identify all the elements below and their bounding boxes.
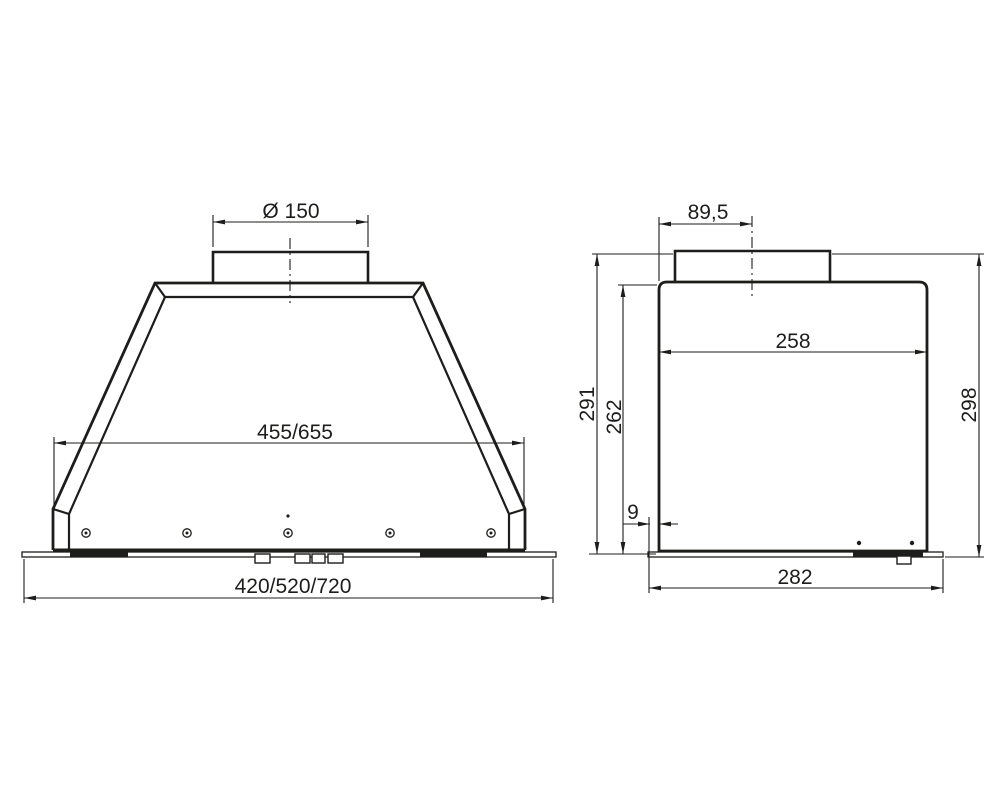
control-button (295, 554, 310, 563)
side-body (659, 282, 927, 551)
dim-label-body-height: 262 (603, 399, 626, 434)
screw-icon (284, 529, 292, 537)
control-button (255, 554, 270, 563)
dim-duct-height: 291 (576, 254, 599, 554)
canopy-outer-edge (53, 283, 525, 550)
side-control-button (897, 556, 911, 564)
indicator-dot (286, 514, 289, 517)
dim-body-height: 262 (603, 285, 626, 554)
front-screws (82, 529, 495, 537)
dim-duct-center-offset: 89,5 (659, 201, 752, 281)
control-buttons (255, 554, 343, 563)
dim-front-lip: 9 (623, 501, 678, 524)
front-view: Ø 150 455/655 420/520/720 (22, 200, 556, 603)
control-button (312, 554, 325, 563)
canopy-corner-miters (53, 283, 525, 514)
dim-label-overall-width: 420/520/720 (235, 575, 352, 598)
dim-label-duct-diameter: Ø 150 (262, 200, 319, 223)
dimension-drawing-page: Ø 150 455/655 420/520/720 (0, 0, 1000, 800)
cooker-hood-technical-drawing: Ø 150 455/655 420/520/720 (0, 0, 1000, 800)
dim-overall-width: 420/520/720 (24, 559, 553, 603)
dim-label-overall-depth: 282 (777, 566, 812, 589)
screw-icon (487, 529, 495, 537)
dim-label-body-depth: 258 (775, 330, 810, 353)
side-rivet-dots (857, 541, 914, 545)
screw-icon (82, 529, 90, 537)
dim-body-depth: 258 (659, 330, 927, 353)
dim-label-front-lip: 9 (627, 501, 639, 524)
control-button (328, 554, 343, 563)
screw-icon (183, 529, 191, 537)
dim-overall-height: 298 (958, 254, 981, 557)
extension-lines (589, 254, 984, 593)
screw-icon (386, 529, 394, 537)
side-gasket-strip (853, 552, 923, 557)
dim-overall-depth: 282 (649, 566, 943, 589)
dim-label-duct-center-offset: 89,5 (688, 201, 729, 224)
dim-label-overall-height: 298 (958, 387, 981, 422)
dim-inner-width: 455/655 (54, 421, 524, 506)
dim-label-duct-height: 291 (576, 386, 599, 421)
side-view: 89,5 258 291 262 (576, 201, 984, 593)
dim-label-inner-width: 455/655 (257, 421, 333, 444)
